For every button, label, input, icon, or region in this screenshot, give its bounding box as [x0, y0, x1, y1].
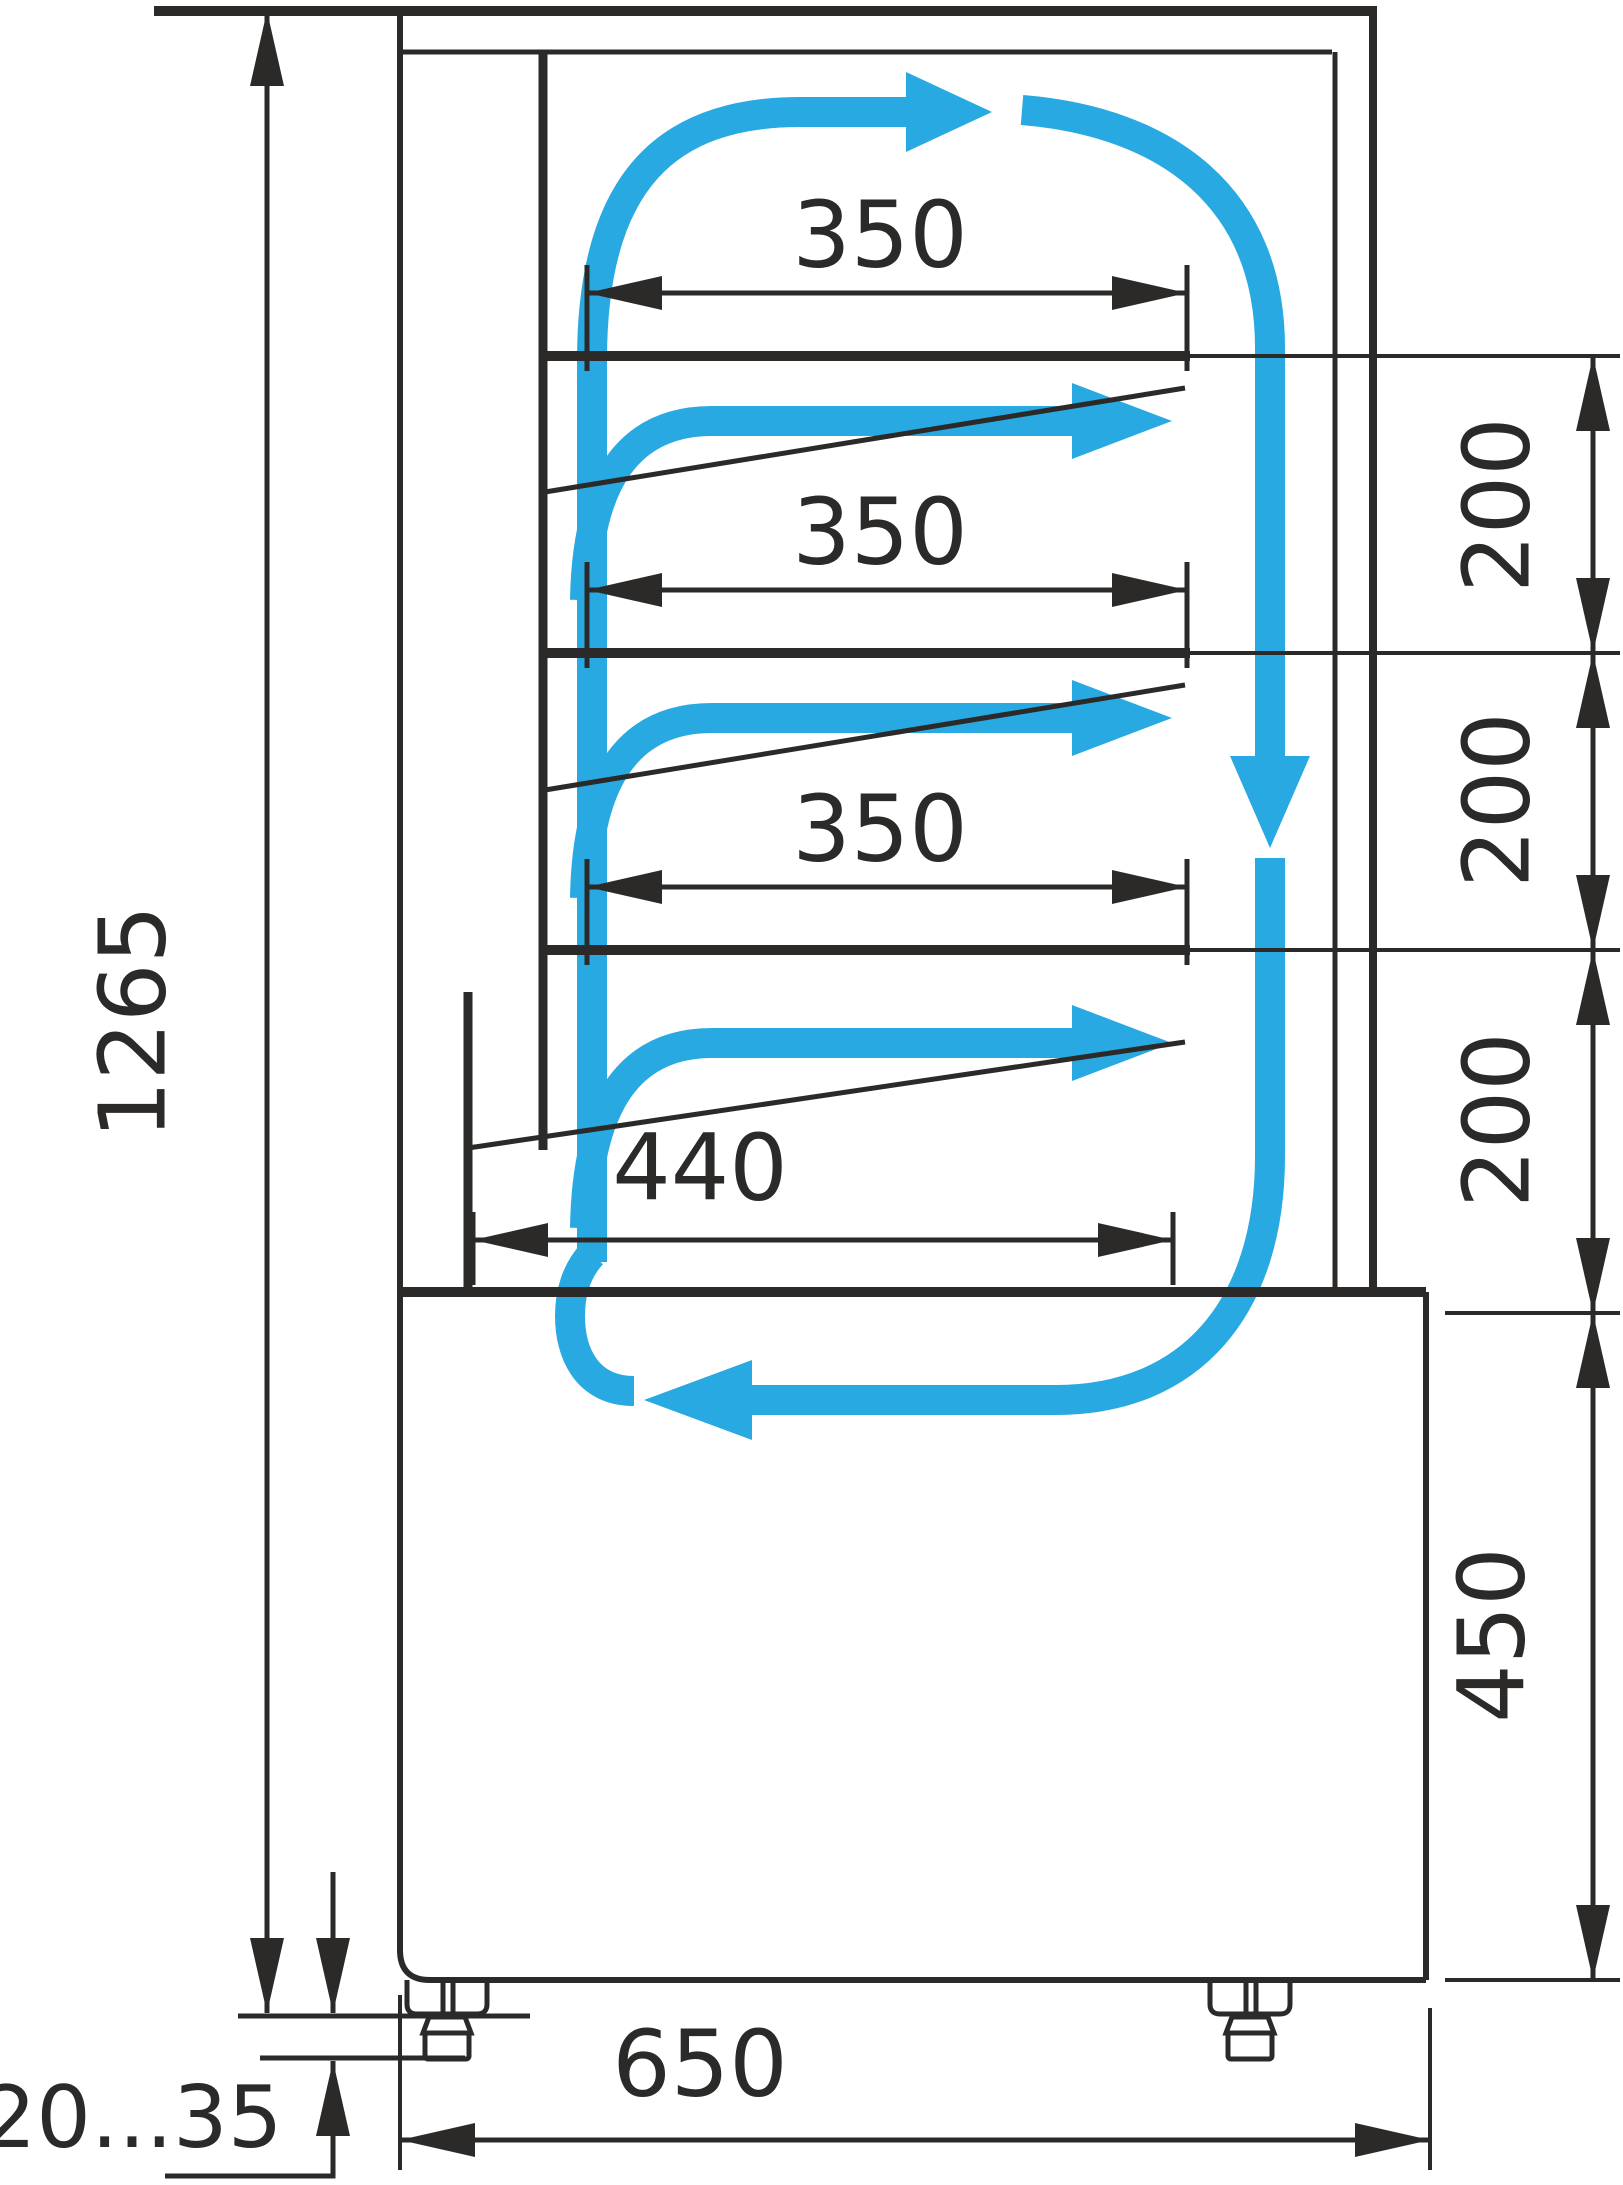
- airflow-bottom-return-run: [752, 858, 1270, 1400]
- dim-arrow-right-icon: [1112, 573, 1187, 607]
- left-foot: [407, 1980, 487, 2059]
- top-supply-arrow-icon: [906, 72, 992, 152]
- dim-arrow-top-icon: [250, 11, 284, 86]
- chain-arrow-icon: [1576, 1238, 1610, 1313]
- bottom-shelf-depth-label: 440: [612, 1115, 788, 1222]
- shelf-branch-arrow-3-icon: [1072, 1005, 1172, 1081]
- foot-adjustment-label: 20...35: [0, 2068, 282, 2168]
- dim-arrow-down-icon: [316, 1938, 350, 2013]
- front-down-arrow-icon: [1230, 756, 1310, 848]
- base-height-label: 450: [1439, 1547, 1546, 1723]
- dim-arrow-bottom-icon: [250, 1938, 284, 2013]
- dim-arrow-right-icon: [1098, 1223, 1173, 1257]
- adjustable-feet: [407, 1980, 1290, 2059]
- dim-overall-depth: [400, 1995, 1430, 2170]
- shelf-spacing-2-label: 200: [1444, 712, 1551, 888]
- left-foot-nut: [425, 2033, 469, 2059]
- overall-depth-label: 650: [612, 2011, 788, 2118]
- shelf-depth-2-label: 350: [792, 479, 968, 586]
- right-foot-bolt: [1246, 1980, 1256, 2014]
- dim-arrow-right-icon: [1112, 870, 1187, 904]
- left-foot-bolt: [443, 1980, 453, 2014]
- chain-arrow-icon: [1576, 356, 1610, 431]
- shelf-spacing-1-label: 200: [1444, 417, 1551, 593]
- display-case-dimension-drawing: 1265 350 350 350 440 200 200 200 450 650…: [0, 0, 1623, 2185]
- bottom-return-arrow-icon: [644, 1360, 752, 1440]
- chain-arrow-icon: [1576, 653, 1610, 728]
- left-foot-plate: [407, 1980, 487, 2014]
- overall-height-label: 1265: [80, 905, 187, 1139]
- dimension-annotations: [165, 11, 1620, 2176]
- dim-arrow-left-icon: [473, 1223, 548, 1257]
- dim-arrow-up-icon: [316, 2061, 350, 2136]
- dim-arrow-left-icon: [400, 2123, 475, 2157]
- cabinet-structure: [154, 7, 1426, 1980]
- airflow-bottom-intake-curve: [570, 1254, 634, 1391]
- dim-right-chain: [1576, 356, 1610, 1980]
- chain-arrow-icon: [1576, 1905, 1610, 1980]
- dimension-labels: 1265 350 350 350 440 200 200 200 450 650…: [0, 182, 1551, 2169]
- dim-arrow-right-icon: [1112, 276, 1187, 310]
- right-foot: [1210, 1980, 1290, 2059]
- right-foot-plate: [1210, 1980, 1290, 2014]
- technical-drawing-canvas: 1265 350 350 350 440 200 200 200 450 650…: [0, 0, 1623, 2185]
- shelf-depth-1-label: 350: [792, 182, 968, 289]
- chain-arrow-icon: [1576, 950, 1610, 1025]
- chain-arrow-icon: [1576, 1313, 1610, 1388]
- chain-arrow-icon: [1576, 875, 1610, 950]
- shelf-depth-3-label: 350: [792, 776, 968, 883]
- shelf-spacing-3-label: 200: [1444, 1032, 1551, 1208]
- right-foot-nut: [1228, 2033, 1272, 2059]
- dim-arrow-right-icon: [1355, 2123, 1430, 2157]
- chain-arrow-icon: [1576, 578, 1610, 653]
- dim-overall-height: [250, 11, 284, 2013]
